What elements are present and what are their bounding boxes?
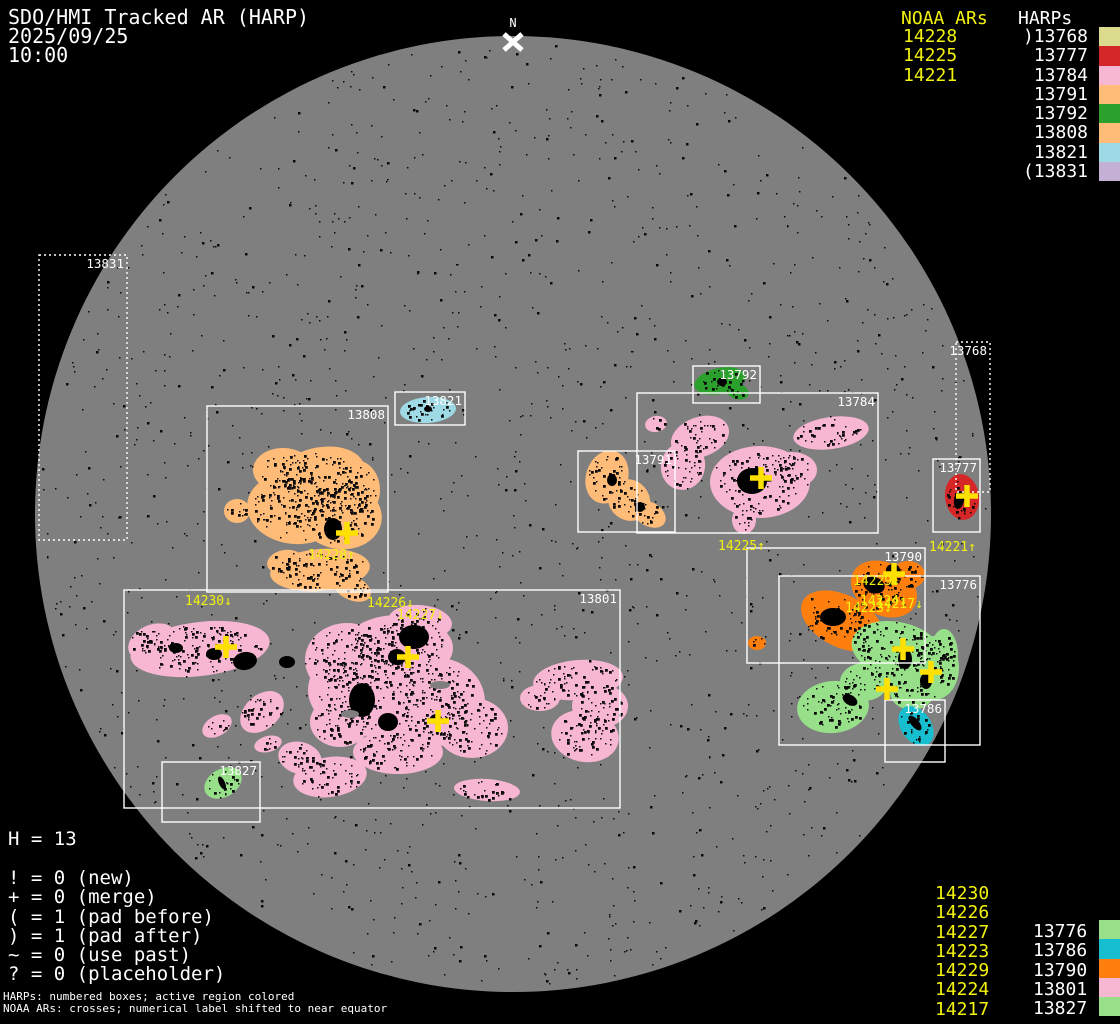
noaa-ar-item: 14230 (935, 884, 989, 903)
noaa-ar-label: 14225↑ (718, 539, 765, 554)
harp-box-label: 13768 (949, 343, 987, 358)
sunspot-core (324, 518, 342, 540)
harp-item: 13791 (988, 85, 1088, 104)
noaa-ar-label: 14228↑ (308, 548, 355, 563)
harp-item: 13786 (1033, 941, 1087, 960)
noaa-ar-item: 14228 (903, 27, 957, 46)
harp-item: 13827 (1033, 999, 1087, 1018)
harp-item: 13784 (988, 66, 1088, 85)
harp-list-top: )13768137771378413791137921380813821(138… (988, 27, 1088, 181)
sunspot-core (279, 656, 295, 668)
active-region-13790 (748, 636, 766, 650)
time-label: 10:00 (8, 46, 68, 65)
harp-list-bottom: 1377613786137901380113827 (1033, 922, 1087, 1018)
noaa-ar-item: 14224 (935, 980, 989, 999)
harp-color-swatch (1099, 123, 1120, 142)
noaa-ar-label: 14227↓ (397, 608, 444, 623)
harp-box-label: 13792 (719, 367, 757, 382)
harp-color-swatch (1099, 46, 1120, 65)
north-marker-label: N (509, 16, 516, 30)
noaa-ar-item: 14223 (935, 942, 989, 961)
sunspot-core (399, 625, 429, 649)
harp-box-label: 13801 (579, 591, 617, 606)
harp-color-swatch (1099, 104, 1120, 123)
noaa-ar-item: 14226 (935, 903, 989, 922)
sdo-hmi-harp-map: 1383113808138211380113827137921378413791… (0, 0, 1120, 1024)
harp-swatches-top (1099, 27, 1120, 181)
sunspot-core (378, 713, 398, 731)
harp-item: 13821 (988, 143, 1088, 162)
active-region-13801 (353, 730, 443, 774)
flag-legend: ! = 0 (new)+ = 0 (merge)( = 1 (pad befor… (8, 869, 225, 985)
noaa-ar-item: 14217 (935, 1000, 989, 1019)
noaa-ar-label: 14221↑ (929, 540, 976, 555)
noaa-ar-item: 14221 (903, 66, 957, 85)
flag-legend-item: ? = 0 (placeholder) (8, 965, 225, 984)
harp-box-label: 13790 (884, 549, 922, 564)
harp-item: 13790 (1033, 961, 1087, 980)
sunspot-core (820, 608, 846, 626)
harp-color-swatch (1099, 66, 1120, 85)
harp-count: H = 13 (8, 830, 77, 849)
harp-item: 13777 (988, 46, 1088, 65)
harp-box-label: 13786 (904, 701, 942, 716)
flag-legend-item: + = 0 (merge) (8, 888, 225, 907)
harp-color-swatch (1099, 143, 1120, 162)
noaa-ar-label: 14229↓ (853, 574, 900, 589)
noaa-ar-label: 14223↓ (845, 601, 892, 616)
harp-color-swatch (1099, 27, 1120, 46)
harp-box-label: 13784 (837, 394, 875, 409)
harp-color-swatch (1099, 959, 1120, 978)
harp-item: 13792 (988, 104, 1088, 123)
harp-box-label: 13777 (939, 460, 977, 475)
harp-box-label: 13827 (219, 763, 257, 778)
noaa-ar-item: 14229 (935, 961, 989, 980)
flag-legend-item: ( = 1 (pad before) (8, 908, 225, 927)
active-region-13801 (436, 698, 508, 758)
region-hole (430, 681, 450, 689)
harp-item: 13801 (1033, 980, 1087, 999)
harp-color-swatch (1099, 997, 1120, 1016)
harp-box-label: 13808 (347, 407, 385, 422)
harp-item: (13831 (988, 162, 1088, 181)
noaa-ar-label: 14230↓ (185, 594, 232, 609)
noaa-ar-list-top: 142281422514221 (903, 27, 957, 85)
harp-swatches-bottom (1099, 920, 1120, 1016)
harp-item: 13776 (1033, 922, 1087, 941)
harp-color-swatch (1099, 939, 1120, 958)
harp-color-swatch (1099, 920, 1120, 939)
noaa-ar-item: 14227 (935, 923, 989, 942)
harp-color-swatch (1099, 162, 1120, 181)
harp-box-label: 13831 (86, 256, 124, 271)
noaa-ar-list-bottom: 14230142261422714223142291422414217 (935, 884, 989, 1019)
harp-color-swatch (1099, 978, 1120, 997)
solar-disk (35, 36, 991, 992)
noaa-ar-item: 14225 (903, 46, 957, 65)
sunspot-core (206, 648, 222, 660)
harp-color-swatch (1099, 85, 1120, 104)
harp-item: )13768 (988, 27, 1088, 46)
sunspot-core (607, 474, 617, 486)
harp-box-label: 13821 (424, 393, 462, 408)
harp-box-label: 13776 (939, 577, 977, 592)
region-hole (341, 710, 359, 718)
sunspot-core (169, 643, 183, 653)
harp-box-label: 13791 (634, 452, 672, 467)
harp-item: 13808 (988, 123, 1088, 142)
footnote-noaa: NOAA ARs: crosses; numerical label shift… (3, 1003, 387, 1015)
